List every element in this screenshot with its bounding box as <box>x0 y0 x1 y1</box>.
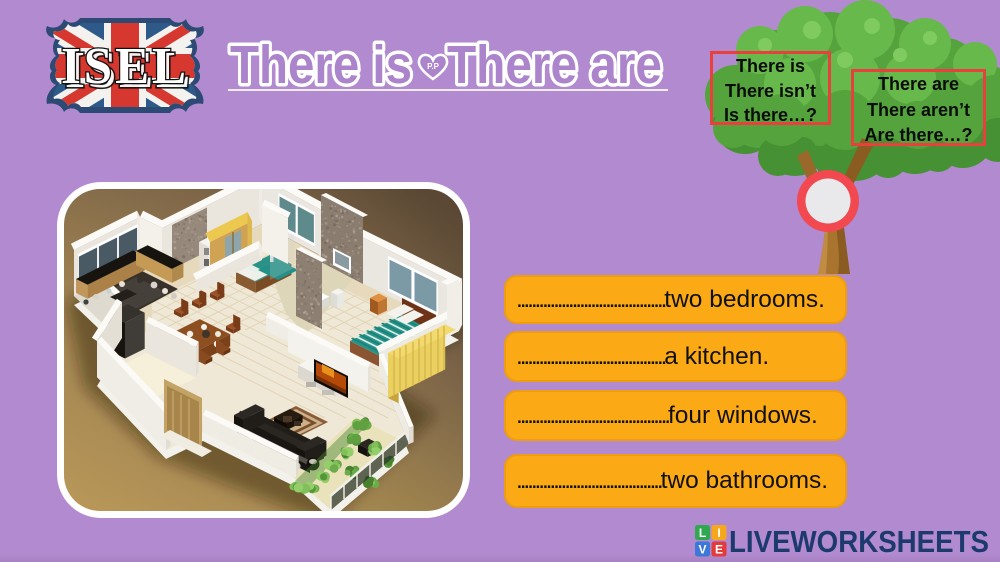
svg-text:V: V <box>698 543 706 557</box>
svg-text:L: L <box>699 526 706 540</box>
svg-text:E: E <box>715 543 723 557</box>
svg-text:I: I <box>717 526 720 540</box>
svg-text:LIVEWORKSHEETS: LIVEWORKSHEETS <box>729 524 989 559</box>
